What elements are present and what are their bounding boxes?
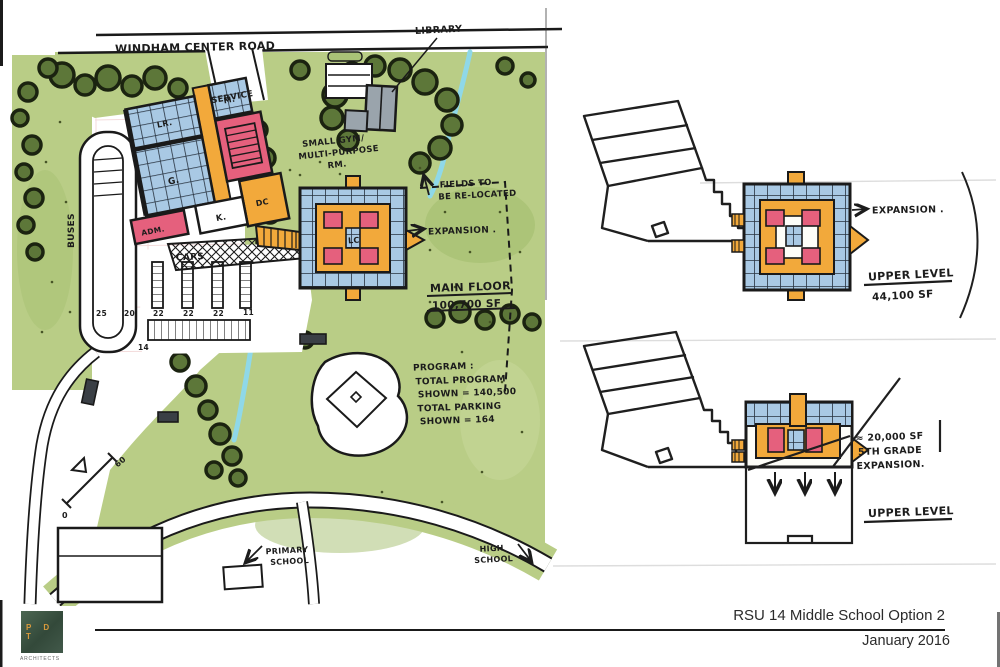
upper-level-diagram: EXPANSION . UPPER LEVEL 44,100 SF	[584, 101, 978, 318]
svg-text:25: 25	[96, 309, 107, 318]
primary-school-label: PRIMARY SCHOOL	[265, 545, 309, 567]
fifth-grade-diagram: ≈ 20,000 SF 5TH GRADE EXPANSION. UPPER L…	[584, 332, 954, 543]
svg-text:22: 22	[153, 309, 164, 318]
bus-loop	[80, 132, 136, 352]
sketch-bottom-margin	[0, 606, 560, 667]
svg-text:0: 0	[62, 511, 68, 520]
sheet: LR. M. G. K. ADM. DC LC	[0, 0, 1000, 667]
svg-text:22: 22	[213, 309, 224, 318]
project-title: RSU 14 Middle School Option 2	[733, 607, 945, 624]
baseball-field	[312, 353, 407, 456]
upper-classroom-block	[732, 172, 868, 300]
upper-level-area: 44,100 SF	[872, 288, 934, 303]
buses-label: BUSES	[67, 213, 77, 248]
room-label-lc: LC	[348, 236, 360, 246]
existing-buildings	[58, 528, 263, 602]
svg-text:PROGRAM :: PROGRAM :	[413, 362, 474, 374]
room-label-k: K.	[215, 212, 227, 224]
sheet-date: January 2016	[862, 633, 950, 649]
lc-classroom-block: LC	[292, 176, 424, 300]
room-label-g: G.	[167, 176, 180, 188]
site-plan-drawing: LR. M. G. K. ADM. DC LC	[0, 0, 1000, 667]
logo-letters: P D T	[26, 623, 63, 641]
svg-text:22: 22	[183, 309, 194, 318]
logo-caption: ARCHITECTS	[20, 656, 60, 662]
expansion-arrow-icon	[852, 209, 866, 210]
svg-text:11: 11	[243, 308, 254, 317]
svg-text:PRIMARY: PRIMARY	[265, 545, 308, 556]
svg-text:EXPANSION.: EXPANSION.	[856, 459, 925, 472]
svg-text:RM.: RM.	[327, 159, 347, 171]
cars-label: CARS	[176, 252, 205, 263]
fifth-grade-block	[732, 394, 868, 467]
svg-text:HIGH: HIGH	[479, 544, 504, 554]
svg-text:20: 20	[124, 309, 135, 318]
svg-text:SCHOOL: SCHOOL	[270, 556, 309, 567]
fifth-grade-level-label: UPPER LEVEL	[868, 504, 954, 520]
svg-text:≈ 20,000 SF: ≈ 20,000 SF	[855, 431, 923, 444]
pdt-architects-logo: P D T	[21, 611, 63, 653]
title-block-rule	[95, 629, 945, 631]
north-arrow-icon	[72, 458, 86, 472]
fifth-grade-note: ≈ 20,000 SF 5TH GRADE EXPANSION.	[855, 431, 925, 472]
library-label: LIBRARY	[415, 24, 463, 37]
down-arrows	[775, 472, 835, 492]
sketch-bracket	[960, 172, 978, 318]
upper-expansion-label: EXPANSION .	[872, 204, 944, 216]
svg-text:14: 14	[138, 343, 149, 352]
svg-text:5TH GRADE: 5TH GRADE	[858, 445, 922, 458]
